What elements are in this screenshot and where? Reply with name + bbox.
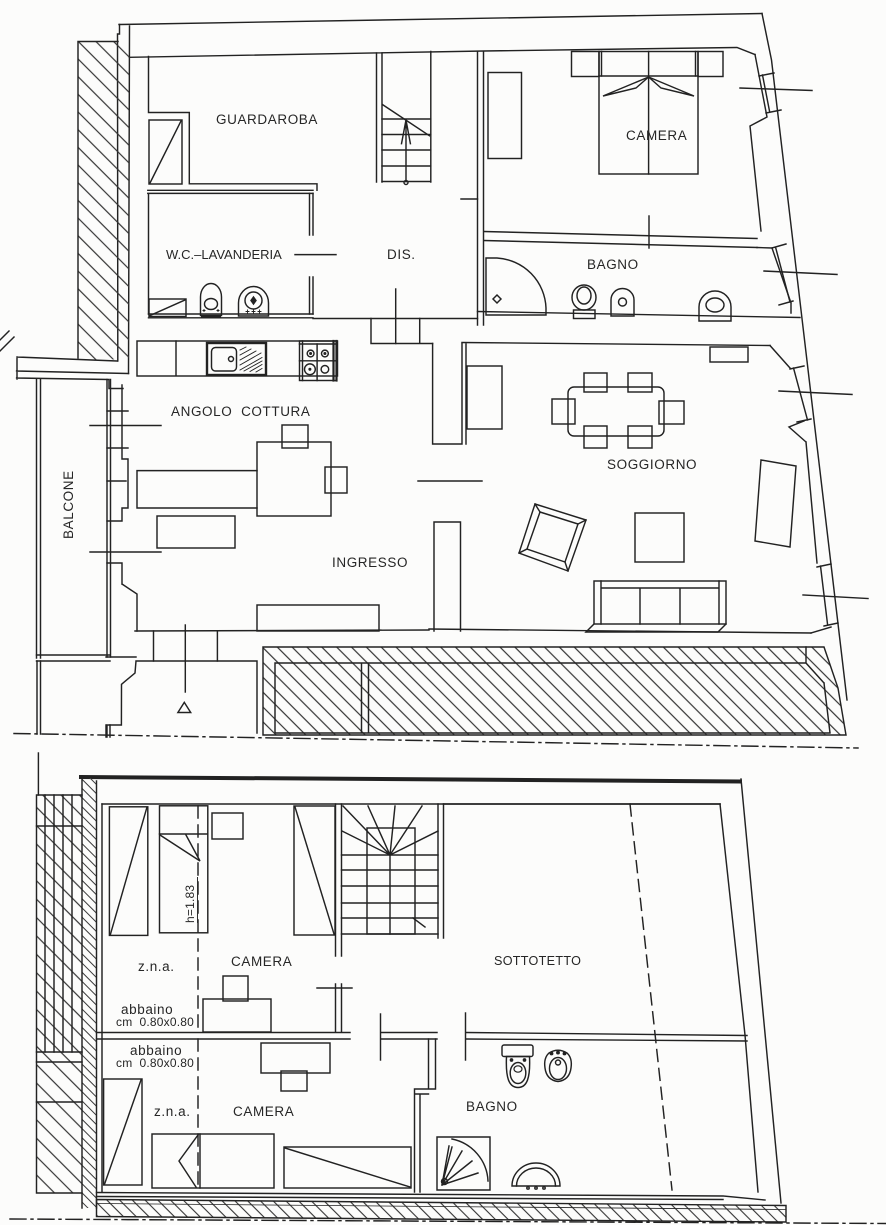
svg-text:INGRESSO: INGRESSO xyxy=(332,555,408,570)
svg-text:CAMERA: CAMERA xyxy=(233,1104,294,1119)
svg-text:SOTTOTETTO: SOTTOTETTO xyxy=(494,954,581,968)
svg-text:BAGNO: BAGNO xyxy=(466,1099,518,1114)
svg-text:z.n.a.: z.n.a. xyxy=(138,959,175,974)
svg-text:CAMERA: CAMERA xyxy=(626,128,687,143)
svg-text:SOGGIORNO: SOGGIORNO xyxy=(607,457,697,472)
svg-text:BALCONE: BALCONE xyxy=(61,470,76,539)
svg-text:DIS.: DIS. xyxy=(387,247,416,262)
svg-text:ANGOLO COTTURA: ANGOLO COTTURA xyxy=(171,404,311,419)
svg-text:h=1.83: h=1.83 xyxy=(183,885,197,923)
svg-text:z.n.a.: z.n.a. xyxy=(154,1104,191,1119)
svg-text:W.C.–LAVANDERIA: W.C.–LAVANDERIA xyxy=(166,247,282,262)
svg-text:CAMERA: CAMERA xyxy=(231,954,292,969)
svg-text:BAGNO: BAGNO xyxy=(587,257,639,272)
svg-text:cm 0.80x0.80: cm 0.80x0.80 xyxy=(116,1015,194,1029)
svg-text:GUARDAROBA: GUARDAROBA xyxy=(216,112,318,127)
svg-text:cm 0.80x0.80: cm 0.80x0.80 xyxy=(116,1056,194,1070)
